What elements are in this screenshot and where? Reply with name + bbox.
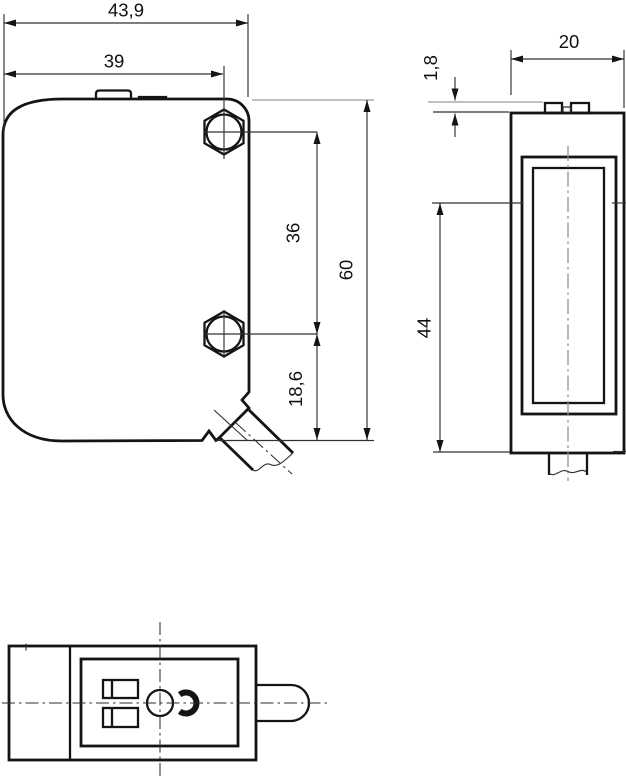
dimension-label: 39 bbox=[104, 51, 125, 72]
dim-front-hole-bottom-offset: 18,6 bbox=[285, 334, 317, 440]
dim-side-tab-height: 1,8 bbox=[420, 55, 543, 137]
gland-lower-edge bbox=[220, 438, 253, 470]
sensor-dimensional-drawing: 43,9 39 36 18,6 60 bbox=[0, 0, 626, 778]
front-body-outline bbox=[3, 99, 249, 441]
led-indicator-top bbox=[103, 680, 138, 698]
dim-side-depth: 20 bbox=[511, 31, 624, 108]
side-top-tab-right bbox=[571, 103, 589, 113]
led-indicator-bottom bbox=[103, 708, 138, 727]
dimension-label: 36 bbox=[283, 223, 304, 244]
dim-front-hole-spacing: 36 bbox=[283, 132, 318, 334]
dim-side-window-height: 44 bbox=[414, 203, 524, 452]
lens-window-outer-frame bbox=[522, 157, 616, 414]
gland-centerline bbox=[236, 423, 292, 474]
dimension-label: 18,6 bbox=[285, 371, 306, 407]
gland-upper-edge bbox=[249, 410, 293, 453]
side-top-tab-left bbox=[545, 103, 562, 113]
dimension-label: 43,9 bbox=[108, 0, 144, 21]
mounting-hole-bottom bbox=[204, 310, 317, 358]
cable-break-line bbox=[253, 453, 293, 471]
bottom-view bbox=[2, 622, 327, 778]
mounting-hole-top bbox=[204, 66, 317, 159]
front-view: 43,9 39 36 18,6 60 bbox=[3, 0, 374, 474]
dim-front-hole-center-width: 39 bbox=[4, 51, 223, 75]
dimension-label: 20 bbox=[559, 31, 580, 52]
dimension-label: 60 bbox=[336, 260, 357, 281]
dimension-label: 44 bbox=[414, 318, 435, 339]
led-window bbox=[103, 680, 138, 698]
led-window bbox=[103, 708, 138, 727]
dim-front-total-width: 43,9 bbox=[4, 0, 248, 133]
dimension-label: 1,8 bbox=[420, 55, 441, 81]
dimensional-drawing-page: 43,9 39 36 18,6 60 bbox=[0, 0, 626, 778]
side-view: 20 1,8 44 bbox=[414, 31, 626, 481]
cable-gland-connector bbox=[214, 410, 293, 474]
